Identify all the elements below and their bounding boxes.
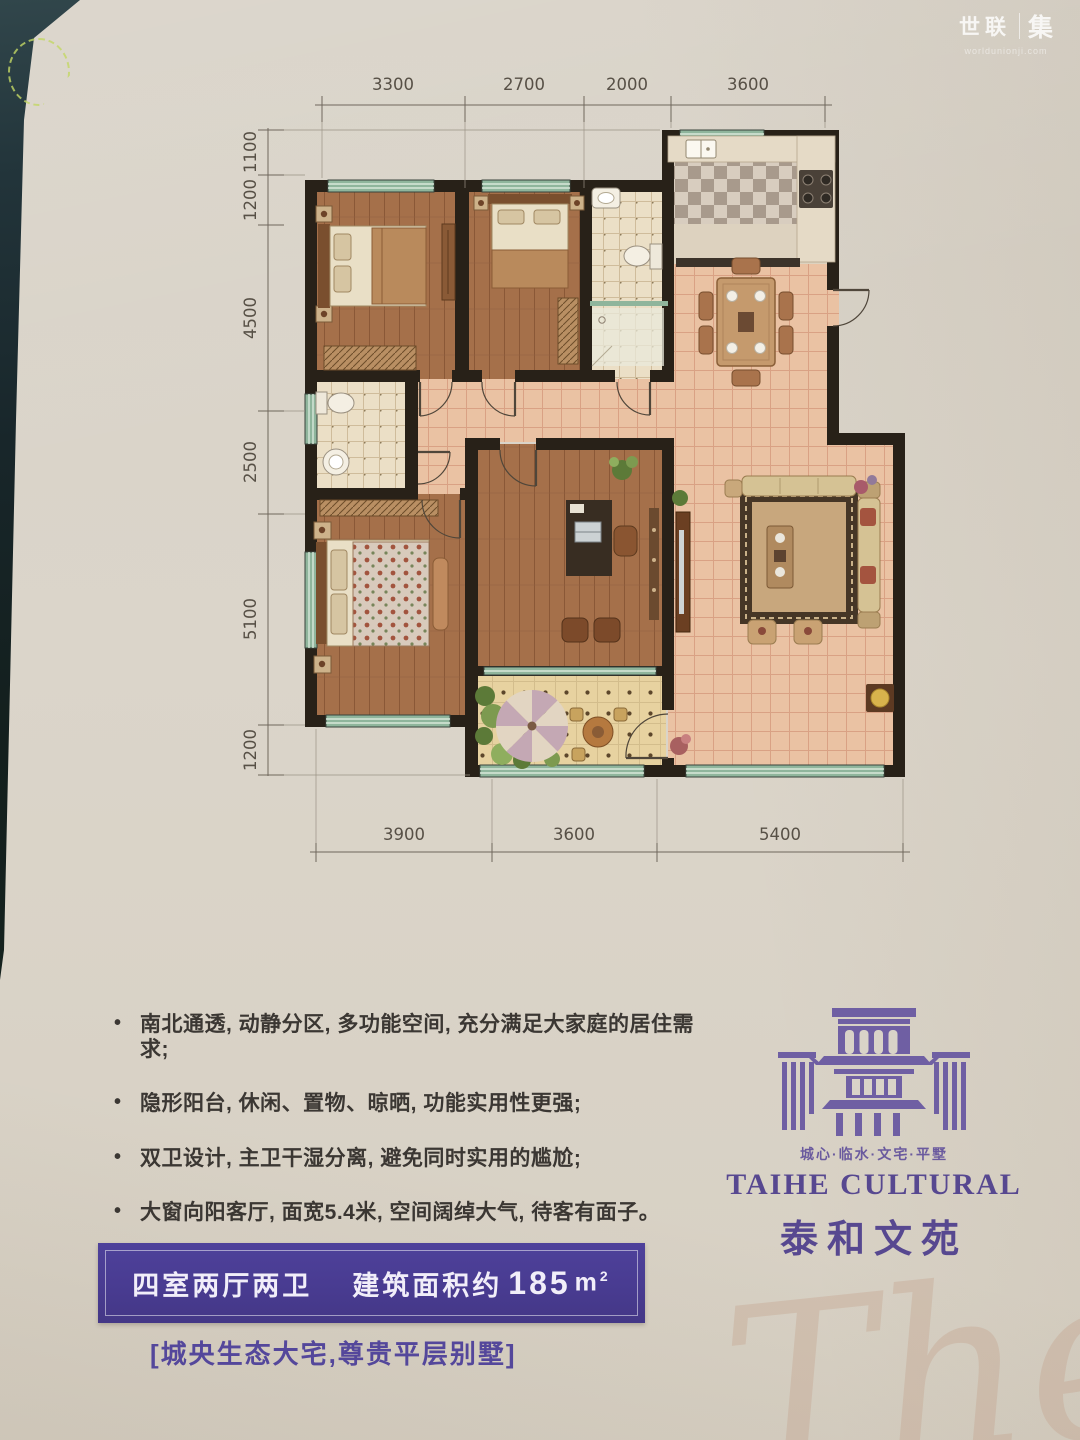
feature-item: • 大窗向阳客厅, 面宽5.4米, 空间阔绰大气, 待客有面子。 [112,1200,712,1225]
feature-item: • 双卫设计, 主卫干湿分离, 避免同时实用的尴尬; [112,1146,712,1171]
umbrella [496,690,568,762]
bed2-headboard [488,194,572,204]
agency-name: 世联 [959,11,1011,41]
agency-suffix: 集 [1028,8,1053,44]
feature-text: 隐形阳台, 休闲、置物、晾晒, 功能实用性更强; [140,1092,581,1115]
feature-item: • 南北通透, 动静分区, 多功能空间, 充分满足大家庭的居住需求; [112,1012,712,1062]
feature-text: 双卫设计, 主卫干湿分离, 避免同时实用的尴尬; [140,1147,581,1170]
kitchen-checker-floor [668,162,797,224]
area-unit: m2 [575,1268,611,1297]
bath2-toilet-tank [316,392,327,414]
dim-left-2: 1200 [241,179,260,221]
bullet-icon: • [114,1199,122,1223]
master-bed-floral-cover [353,542,429,646]
floor-plan: 3300 2700 2000 3600 1100 1200 4500 2500 … [220,10,960,880]
feature-list: • 南北通透, 动静分区, 多功能空间, 充分满足大家庭的居住需求; • 隐形阳… [112,1012,712,1254]
dim-bottom-3: 5400 [759,825,801,844]
dim-left-4: 2500 [241,441,260,483]
logo-name-cn: 泰和文苑 [700,1208,1048,1263]
feature-text: 南北通透, 动静分区, 多功能空间, 充分满足大家庭的居住需求; [140,1013,694,1061]
slogan: [城央生态大宅,尊贵平层别墅] [150,1334,517,1371]
area-value: 185 [508,1265,570,1302]
lens-ring-artifact [8,38,70,106]
logo-tagline: 城心·临水·文宅·平墅 [700,1144,1048,1164]
bullet-icon: • [114,1011,122,1035]
desk-chair [614,526,637,556]
dim-top-2: 2700 [503,75,545,94]
bullet-icon: • [114,1145,122,1169]
room-count: 四室两厅两卫 [132,1264,312,1303]
study-shelf [649,508,659,620]
bed1-headboard [318,224,330,308]
window-living-bottom [686,765,884,777]
building-icon [774,1006,974,1136]
feature-item: • 隐形阳台, 休闲、置物、晾晒, 功能实用性更强; [112,1091,712,1116]
window-bedroom2 [482,180,570,192]
brochure-photo: { "photo": { "brand_cn": "世联", "brand_su… [0,0,1080,1440]
dim-bottom-1: 3900 [383,825,425,844]
logo-name-en: TAIHE CULTURAL [700,1168,1048,1202]
bath2-toilet-bowl [328,393,354,413]
dim-left-3: 4500 [241,297,260,339]
dim-top-4: 3600 [727,75,769,94]
bath1-toilet-tank [650,244,662,269]
dim-left-5: 5100 [241,598,260,640]
window-bath2 [305,394,317,444]
photo-dark-edge [0,0,90,980]
shower-glass [590,301,668,306]
feature-text: 大窗向阳客厅, 面宽5.4米, 空间阔绰大气, 待客有面子。 [140,1201,660,1224]
dim-left-1: 1100 [241,131,260,173]
bullet-icon: • [114,1090,122,1114]
master-bench [433,558,448,630]
unit-summary-banner: 四室两厅两卫 建筑面积约 185 m2 [98,1243,645,1323]
plant [672,490,688,506]
sofa-top [742,476,856,496]
window-master-left [305,552,317,648]
window-study-balcony [484,667,656,675]
bath1-toilet-bowl [624,246,650,266]
dim-top-3: 2000 [606,75,648,94]
developer-logo: 城心·临水·文宅·平墅 TAIHE CULTURAL 泰和文苑 [700,1006,1048,1263]
tv [679,530,684,614]
window-master-bottom [326,715,450,727]
dim-bottom-2: 3600 [553,825,595,844]
window-bedroom1 [328,180,434,192]
area-prefix: 建筑面积约 [352,1264,502,1303]
dim-left-6: 1200 [241,729,260,771]
master-headboard [316,542,327,644]
divider [1019,13,1020,39]
window-balcony-bottom [480,765,644,777]
dim-top-1: 3300 [372,75,414,94]
